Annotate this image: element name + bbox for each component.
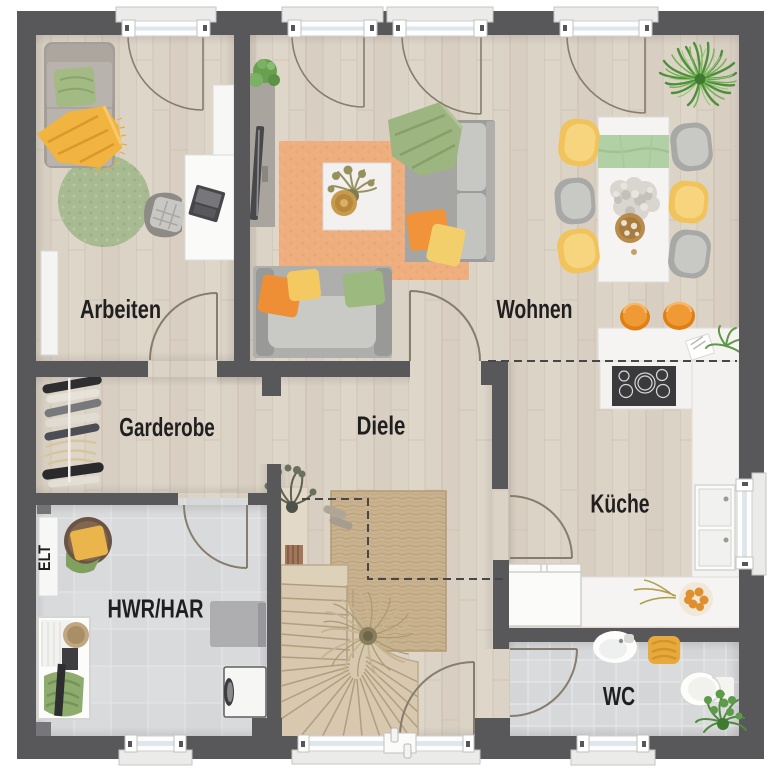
svg-text:Küche: Küche xyxy=(590,490,649,518)
svg-text:WC: WC xyxy=(603,682,635,710)
svg-text:Wohnen: Wohnen xyxy=(497,295,573,323)
svg-text:Diele: Diele xyxy=(357,411,406,440)
svg-text:ELT: ELT xyxy=(36,545,54,571)
svg-text:Arbeiten: Arbeiten xyxy=(80,295,161,324)
svg-text:HWR/HAR: HWR/HAR xyxy=(107,594,204,623)
svg-text:Garderobe: Garderobe xyxy=(119,413,214,441)
